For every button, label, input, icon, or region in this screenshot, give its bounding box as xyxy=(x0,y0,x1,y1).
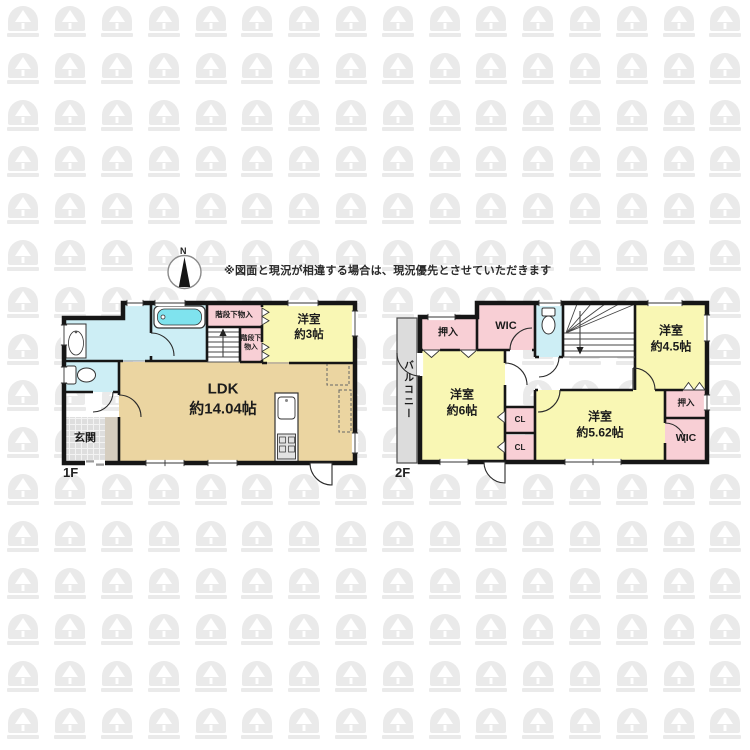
watermark-motif xyxy=(608,702,655,749)
kitchen-counter xyxy=(275,393,298,462)
watermark-motif xyxy=(608,94,655,141)
watermark-motif xyxy=(655,187,702,234)
watermark-motif xyxy=(140,608,187,655)
watermark-motif xyxy=(702,562,749,609)
watermark-motif xyxy=(0,140,47,187)
watermark-motif xyxy=(47,234,94,281)
room-label-western562: 洋室 約5.62帖 xyxy=(576,409,623,440)
watermark-motif xyxy=(140,47,187,94)
watermark-motif xyxy=(374,608,421,655)
toilet-fixture-2f xyxy=(542,308,555,334)
watermark-motif xyxy=(47,94,94,141)
watermark-motif xyxy=(328,515,375,562)
watermark-motif xyxy=(94,655,141,702)
room-label-cl-lower: CL xyxy=(515,443,526,453)
watermark-motif xyxy=(281,94,328,141)
watermark-motif xyxy=(374,140,421,187)
floor2-label: 2F xyxy=(395,465,410,480)
watermark-motif xyxy=(562,94,609,141)
watermark-motif xyxy=(328,655,375,702)
watermark-motif xyxy=(0,421,47,468)
watermark-motif xyxy=(47,655,94,702)
watermark-motif xyxy=(515,0,562,47)
watermark-motif xyxy=(187,47,234,94)
watermark-motif xyxy=(562,702,609,749)
watermark-motif xyxy=(187,94,234,141)
watermark-motif xyxy=(421,608,468,655)
watermark-motif xyxy=(281,0,328,47)
watermark-motif xyxy=(0,702,47,749)
watermark-motif xyxy=(608,234,655,281)
watermark-motif xyxy=(94,234,141,281)
watermark-motif xyxy=(562,0,609,47)
watermark-motif xyxy=(562,187,609,234)
room-label-western6: 洋室 約6帖 xyxy=(447,387,478,418)
watermark-motif xyxy=(608,0,655,47)
watermark-motif xyxy=(140,562,187,609)
watermark-motif xyxy=(468,702,515,749)
watermark-motif xyxy=(281,562,328,609)
watermark-motif xyxy=(655,234,702,281)
watermark-motif xyxy=(140,515,187,562)
watermark-motif xyxy=(140,187,187,234)
watermark-motif xyxy=(374,187,421,234)
washbasin xyxy=(66,324,86,358)
floor1-label: 1F xyxy=(63,465,78,480)
watermark-motif xyxy=(374,47,421,94)
watermark-motif xyxy=(187,140,234,187)
watermark-motif xyxy=(468,140,515,187)
watermark-motif xyxy=(655,515,702,562)
watermark-motif xyxy=(608,47,655,94)
room-label-oshiire-left: 押入 xyxy=(438,327,458,340)
watermark-motif xyxy=(702,655,749,702)
watermark-motif xyxy=(94,608,141,655)
watermark-motif xyxy=(281,702,328,749)
watermark-motif xyxy=(328,94,375,141)
watermark-motif xyxy=(702,234,749,281)
disclaimer-note: ※図面と現況が相違する場合は、現況優先とさせていただきます xyxy=(224,262,551,278)
watermark-motif xyxy=(140,140,187,187)
watermark-motif xyxy=(328,702,375,749)
watermark-motif xyxy=(140,655,187,702)
watermark-motif xyxy=(515,187,562,234)
floorplan-page: { "note": { "text": "※図面と現況が相違する場合は、現況優先… xyxy=(0,0,750,750)
watermark-motif xyxy=(187,515,234,562)
watermark-motif xyxy=(140,0,187,47)
watermark-motif xyxy=(0,562,47,609)
watermark-motif xyxy=(47,608,94,655)
watermark-motif xyxy=(94,94,141,141)
watermark-motif xyxy=(562,140,609,187)
watermark-motif xyxy=(421,515,468,562)
watermark-motif xyxy=(281,655,328,702)
watermark-motif xyxy=(0,374,47,421)
room-label-wic-top: WIC xyxy=(495,319,516,333)
watermark-motif xyxy=(515,140,562,187)
room-label-under-stairs-storage: 階段下物入 xyxy=(215,310,253,320)
watermark-motif xyxy=(94,515,141,562)
watermark-motif xyxy=(702,515,749,562)
watermark-motif xyxy=(468,608,515,655)
watermark-motif xyxy=(187,0,234,47)
watermark-motif xyxy=(187,702,234,749)
watermark-motif xyxy=(234,562,281,609)
watermark-motif xyxy=(374,655,421,702)
watermark-motif xyxy=(608,187,655,234)
watermark-motif xyxy=(0,94,47,141)
watermark-motif xyxy=(421,562,468,609)
watermark-motif xyxy=(702,608,749,655)
watermark-motif xyxy=(0,234,47,281)
compass-drawing xyxy=(165,251,205,293)
room-label-entrance: 玄関 xyxy=(74,431,96,445)
watermark-motif xyxy=(515,655,562,702)
watermark-motif xyxy=(328,562,375,609)
watermark-motif xyxy=(702,140,749,187)
watermark-motif xyxy=(374,702,421,749)
floor1: LDK 約14.04帖 洋室 約3帖 玄関 階段下物入 階段下 物入 1F xyxy=(55,295,367,495)
watermark-motif xyxy=(328,47,375,94)
watermark-motif xyxy=(47,187,94,234)
watermark-motif xyxy=(562,515,609,562)
watermark-motif xyxy=(94,0,141,47)
watermark-motif xyxy=(468,562,515,609)
watermark-motif xyxy=(47,702,94,749)
watermark-motif xyxy=(562,562,609,609)
watermark-motif xyxy=(234,0,281,47)
watermark-motif xyxy=(281,47,328,94)
watermark-motif xyxy=(94,562,141,609)
watermark-motif xyxy=(374,562,421,609)
watermark-motif xyxy=(94,702,141,749)
watermark-motif xyxy=(234,515,281,562)
watermark-motif xyxy=(47,47,94,94)
watermark-motif xyxy=(515,702,562,749)
room-label-cl-upper: CL xyxy=(515,415,526,425)
watermark-motif xyxy=(234,655,281,702)
watermark-motif xyxy=(281,608,328,655)
room-label-balcony: バルコニー xyxy=(401,360,414,420)
watermark-motif xyxy=(0,655,47,702)
watermark-motif xyxy=(374,94,421,141)
watermark-motif xyxy=(421,702,468,749)
watermark-motif xyxy=(421,0,468,47)
watermark-motif xyxy=(281,515,328,562)
watermark-motif xyxy=(421,47,468,94)
watermark-motif xyxy=(702,187,749,234)
watermark-motif xyxy=(421,655,468,702)
room-label-wic-bottom: WIC xyxy=(676,432,696,446)
watermark-motif xyxy=(234,187,281,234)
watermark-motif xyxy=(140,702,187,749)
watermark-motif xyxy=(0,187,47,234)
watermark-motif xyxy=(421,187,468,234)
watermark-motif xyxy=(0,328,47,375)
watermark-motif xyxy=(608,655,655,702)
watermark-motif xyxy=(374,0,421,47)
watermark-motif xyxy=(328,608,375,655)
watermark-motif xyxy=(702,47,749,94)
watermark-motif xyxy=(562,608,609,655)
watermark-motif xyxy=(328,0,375,47)
room-label-oshiire-right: 押入 xyxy=(677,397,694,408)
watermark-motif xyxy=(187,655,234,702)
watermark-motif xyxy=(0,608,47,655)
watermark-motif xyxy=(468,94,515,141)
watermark-motif xyxy=(468,187,515,234)
room-label-ldk: LDK 約14.04帖 xyxy=(189,380,257,419)
watermark-motif xyxy=(0,47,47,94)
watermark-motif xyxy=(234,608,281,655)
watermark-motif xyxy=(655,655,702,702)
room-label-western3: 洋室 約3帖 xyxy=(294,313,323,343)
watermark-motif xyxy=(234,702,281,749)
entrance-door xyxy=(85,460,105,466)
watermark-motif xyxy=(234,94,281,141)
watermark-motif xyxy=(94,140,141,187)
watermark-motif xyxy=(468,0,515,47)
watermark-motif xyxy=(187,187,234,234)
room-label-western45: 洋室 約4.5帖 xyxy=(651,323,692,354)
watermark-motif xyxy=(234,47,281,94)
watermark-motif xyxy=(0,0,47,47)
watermark-motif xyxy=(515,47,562,94)
watermark-motif xyxy=(562,47,609,94)
watermark-motif xyxy=(421,94,468,141)
watermark-motif xyxy=(187,608,234,655)
watermark-motif xyxy=(187,562,234,609)
watermark-motif xyxy=(47,0,94,47)
watermark-motif xyxy=(140,94,187,141)
watermark-motif xyxy=(281,187,328,234)
watermark-motif xyxy=(468,655,515,702)
watermark-motif xyxy=(608,515,655,562)
watermark-motif xyxy=(234,140,281,187)
compass-icon: N xyxy=(165,251,205,293)
watermark-motif xyxy=(515,94,562,141)
watermark-motif xyxy=(702,702,749,749)
watermark-motif xyxy=(468,515,515,562)
watermark-motif xyxy=(47,140,94,187)
watermark-motif xyxy=(655,0,702,47)
watermark-motif xyxy=(515,608,562,655)
watermark-motif xyxy=(702,0,749,47)
bathtub xyxy=(154,306,205,328)
watermark-motif xyxy=(328,187,375,234)
watermark-motif xyxy=(328,140,375,187)
watermark-motif xyxy=(0,281,47,328)
watermark-motif xyxy=(515,515,562,562)
watermark-motif xyxy=(608,140,655,187)
watermark-motif xyxy=(47,562,94,609)
watermark-motif xyxy=(94,187,141,234)
watermark-motif xyxy=(702,94,749,141)
watermark-motif xyxy=(655,702,702,749)
watermark-motif xyxy=(655,140,702,187)
watermark-motif xyxy=(468,47,515,94)
watermark-motif xyxy=(562,234,609,281)
watermark-motif xyxy=(94,47,141,94)
watermark-motif xyxy=(562,655,609,702)
watermark-motif xyxy=(655,94,702,141)
watermark-motif xyxy=(515,562,562,609)
watermark-motif xyxy=(608,562,655,609)
watermark-motif xyxy=(655,608,702,655)
compass-north-label: N xyxy=(180,246,187,256)
watermark-motif xyxy=(421,140,468,187)
watermark-motif xyxy=(0,468,47,515)
room-label-under-stairs-storage-small: 階段下 物入 xyxy=(241,335,261,353)
watermark-motif xyxy=(655,47,702,94)
watermark-motif xyxy=(47,515,94,562)
watermark-motif xyxy=(374,515,421,562)
floor2: バルコニー 押入 WIC 洋室 約6帖 洋室 約4.5帖 洋室 約5.62帖 C… xyxy=(393,295,715,495)
watermark-motif xyxy=(0,515,47,562)
watermark-motif xyxy=(655,562,702,609)
watermark-motif xyxy=(608,608,655,655)
watermark-motif xyxy=(281,140,328,187)
